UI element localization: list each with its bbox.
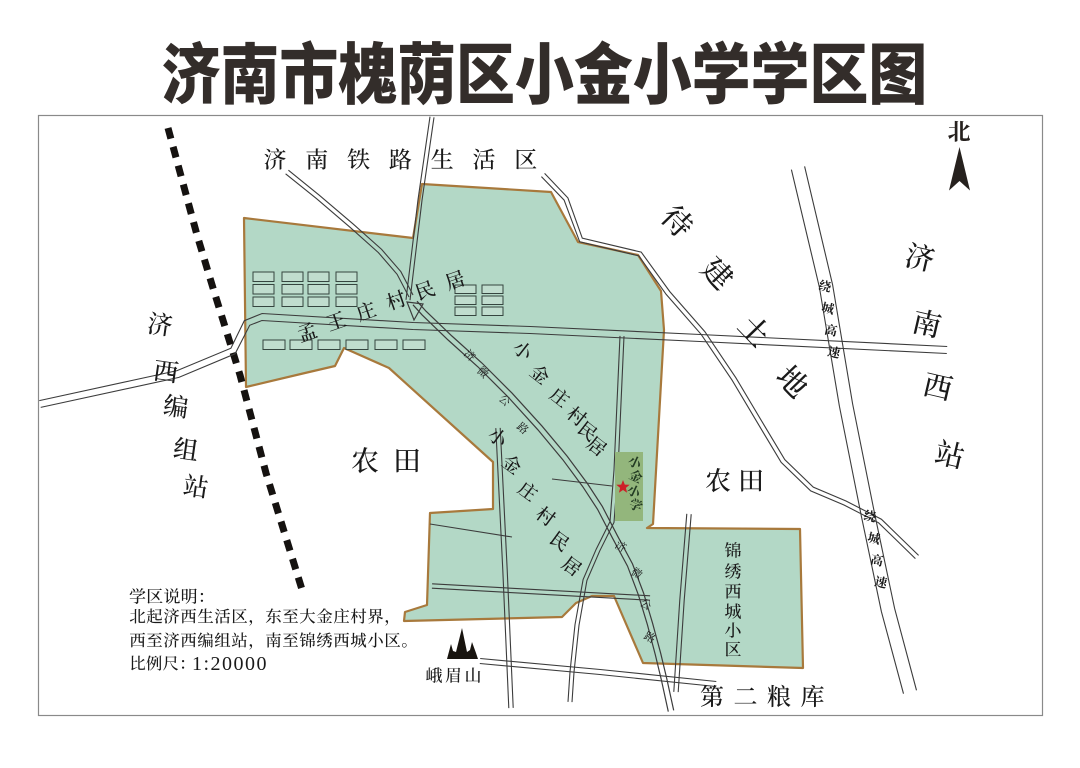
svg-text:1:20000: 1:20000 [192,653,268,675]
